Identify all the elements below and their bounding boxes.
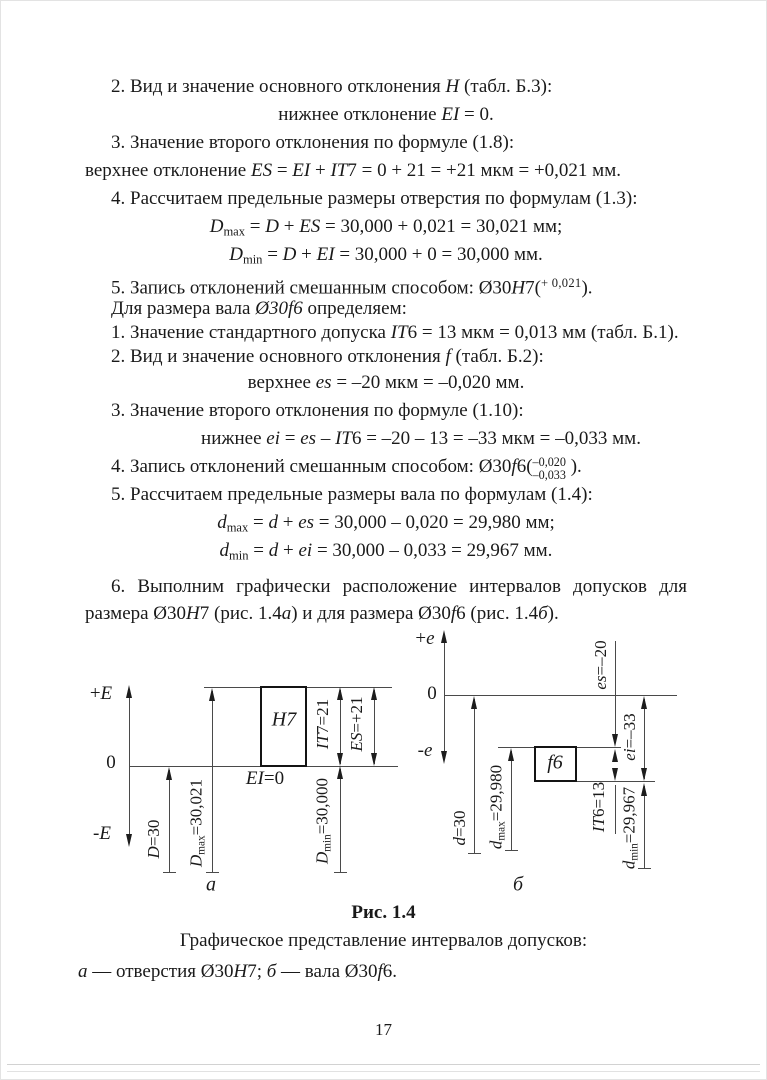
lower-deviation-ei: нижнее отклонение EI = 0. xyxy=(85,101,687,129)
arrowhead-up-icon xyxy=(209,688,215,701)
fig-b-dmin-line xyxy=(644,786,645,869)
fig-a-dmin-line xyxy=(340,769,341,873)
fig-b-d-base-tick xyxy=(468,853,481,854)
fig-b-f6-box-label: f6 xyxy=(547,752,563,775)
figure-caption-number: Рис. 1.4 xyxy=(1,902,766,924)
item-4-hole: 4. Рассчитаем предельные размеры отверст… xyxy=(85,185,687,213)
fig-b-ei-label: ei=–33 xyxy=(620,713,640,760)
item-4-shaft: 4. Запись отклонений смешанным способом:… xyxy=(85,453,687,481)
arrowhead-down-icon xyxy=(612,768,618,781)
arrowhead-up-icon xyxy=(471,696,477,709)
fig-b-it6-label: IT6=13 xyxy=(589,782,609,832)
fig-b-ei-line xyxy=(644,699,645,779)
fig-a-it7-label: IT7=21 xyxy=(313,699,333,749)
fig-b-dmax-line xyxy=(511,751,512,851)
fig-b-minus-e-label: -e xyxy=(418,740,433,762)
upper-deviation-es-shaft: верхнее es = –20 мкм = –0,020 мм. xyxy=(85,369,687,397)
fig-b-letter: б xyxy=(513,874,523,897)
fig-a-ei0-label: EI=0 xyxy=(246,768,284,790)
scan-artifact-line xyxy=(7,1064,760,1065)
fig-b-dmax-base-tick xyxy=(505,850,518,851)
fig-b-dmax-label: dmax=29,980 xyxy=(486,765,507,849)
formula-dmax-shaft: dmax = d + es = 30,000 – 0,020 = 29,980 … xyxy=(85,509,687,537)
fig-b-plus-e-label: +e xyxy=(415,628,434,650)
fig-b-d-label: d=30 xyxy=(450,810,470,845)
fig-a-d-label: D=30 xyxy=(144,820,164,859)
arrowhead-up-icon xyxy=(166,767,172,780)
item-2-shaft: 2. Вид и значение основного отклонения f… xyxy=(85,345,687,369)
shaft-intro: Для размера вала Ø30f6 определяем: xyxy=(85,297,687,321)
arrowhead-up-icon xyxy=(641,783,647,796)
fig-a-dmax-line xyxy=(212,691,213,873)
arrowhead-up-icon xyxy=(612,749,618,762)
arrowhead-down-icon xyxy=(612,734,618,747)
item-5-shaft: 5. Рассчитаем предельные размеры вала по… xyxy=(85,481,687,509)
fig-b-es-line xyxy=(615,641,616,735)
document-page: 2. Вид и значение основного отклонения H… xyxy=(0,0,767,1080)
item-3-hole: 3. Значение второго отклонения по формул… xyxy=(85,129,687,157)
fig-a-plus-e-label: +E xyxy=(90,683,112,705)
arrowhead-up-icon xyxy=(337,687,343,700)
formula-dmax-hole: Dmax = D + ES = 30,000 + 0,021 = 30,021 … xyxy=(85,213,687,241)
fig-b-es-label: es=–20 xyxy=(591,640,611,689)
fig-b-it6-ext-line xyxy=(615,785,616,834)
fig-a-dmin-base-tick xyxy=(334,872,347,873)
fig-a-letter: а xyxy=(206,874,216,897)
fig-b-zero-label: 0 xyxy=(427,683,437,705)
scan-artifact-line xyxy=(7,1071,760,1072)
fig-a-es-label: ES=+21 xyxy=(347,696,367,751)
figure-caption-detail: а — отверстия Ø30H7; б — вала Ø30f6. xyxy=(78,961,397,983)
fig-a-zero-label: 0 xyxy=(106,752,116,774)
figure-caption-text: Графическое представление интервалов доп… xyxy=(1,930,766,952)
formula-dmin-hole: Dmin = D + EI = 30,000 + 0 = 30,000 мм. xyxy=(85,241,687,269)
lower-deviation-ei-shaft: нижнее ei = es – IT6 = –20 – 13 = –33 мк… xyxy=(155,425,687,453)
arrowhead-down-icon xyxy=(126,834,132,847)
fig-a-minus-e-label: -E xyxy=(93,823,111,845)
text-block: 2. Вид и значение основного отклонения H… xyxy=(85,73,687,627)
fig-a-h7-box-label: H7 xyxy=(272,709,296,732)
fig-b-d-line xyxy=(474,699,475,854)
fig-b-lower-level-line xyxy=(576,781,655,782)
arrowhead-down-icon xyxy=(371,753,377,766)
arrowhead-up-icon xyxy=(441,630,447,643)
item-5-hole: 5. Запись отклонений смешанным способом:… xyxy=(85,269,687,297)
page-number: 17 xyxy=(1,1020,766,1040)
arrowhead-down-icon xyxy=(337,753,343,766)
arrowhead-up-icon xyxy=(641,696,647,709)
arrowhead-down-icon xyxy=(441,751,447,764)
arrowhead-down-icon xyxy=(641,768,647,781)
item-6-paragraph: 6. Выполним графически расположение инте… xyxy=(85,573,687,627)
item-1-shaft: 1. Значение стандартного допуска IT6 = 1… xyxy=(85,321,687,345)
arrowhead-up-icon xyxy=(371,687,377,700)
item-2-hole: 2. Вид и значение основного отклонения H… xyxy=(85,73,687,101)
arrowhead-up-icon xyxy=(126,685,132,698)
arrowhead-up-icon xyxy=(508,748,514,761)
item-3-shaft: 3. Значение второго отклонения по формул… xyxy=(85,397,687,425)
fig-a-d-base-tick xyxy=(163,872,176,873)
arrowhead-up-icon xyxy=(337,766,343,779)
fig-b-axis-line xyxy=(444,635,445,759)
fig-a-dmin-label: Dmin=30,000 xyxy=(312,778,333,864)
fig-b-dmin-label: dmin=29,967 xyxy=(619,787,640,869)
fig-a-d-line xyxy=(169,770,170,873)
upper-deviation-es: верхнее отклонение ES = EI + IT7 = 0 + 2… xyxy=(85,157,687,185)
formula-dmin-shaft: dmin = d + ei = 30,000 – 0,033 = 29,967 … xyxy=(85,537,687,565)
fig-a-dmax-label: Dmax=30,021 xyxy=(186,779,207,867)
